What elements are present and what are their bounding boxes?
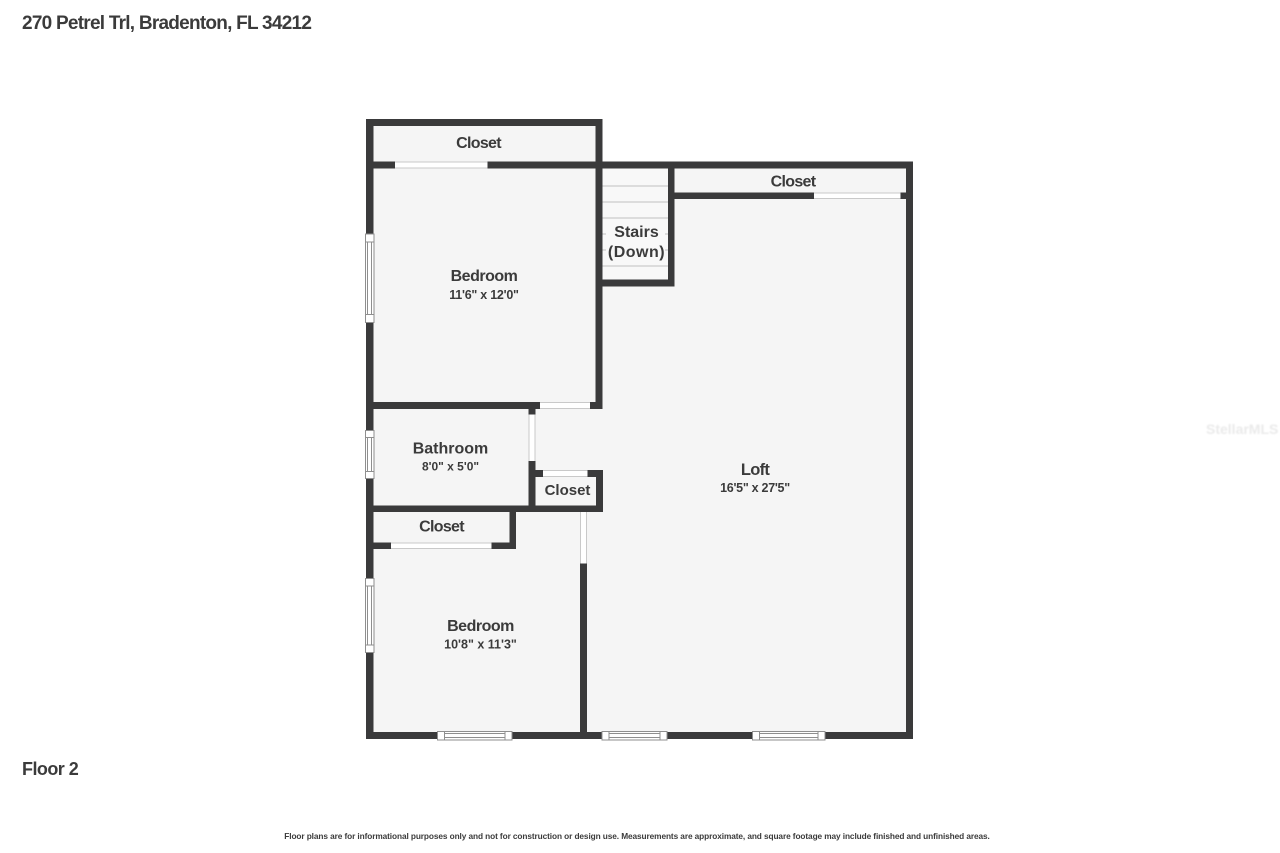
svg-text:10'8" x 11'3": 10'8" x 11'3" <box>444 638 517 652</box>
svg-text:StellarMLS: StellarMLS <box>1206 421 1278 437</box>
svg-text:Closet: Closet <box>545 482 591 499</box>
svg-text:Closet: Closet <box>456 135 502 152</box>
svg-text:8'0" x 5'0": 8'0" x 5'0" <box>422 460 479 474</box>
svg-text:Bedroom: Bedroom <box>451 268 518 285</box>
svg-text:16'5" x 27'5": 16'5" x 27'5" <box>720 481 790 495</box>
svg-text:Bedroom: Bedroom <box>447 618 514 635</box>
svg-text:270 Petrel Trl, Bradenton, FL: 270 Petrel Trl, Bradenton, FL 34212 <box>22 13 311 34</box>
svg-text:Floor plans are for informatio: Floor plans are for informational purpos… <box>284 831 989 841</box>
svg-text:11'6" x 12'0": 11'6" x 12'0" <box>449 288 519 302</box>
svg-text:(Down): (Down) <box>608 244 665 261</box>
svg-text:Floor 2: Floor 2 <box>22 759 79 779</box>
svg-text:Closet: Closet <box>771 174 817 191</box>
svg-text:Loft: Loft <box>741 461 770 479</box>
svg-text:Closet: Closet <box>419 519 465 536</box>
svg-text:Stairs: Stairs <box>614 224 659 241</box>
svg-text:Bathroom: Bathroom <box>413 441 489 458</box>
